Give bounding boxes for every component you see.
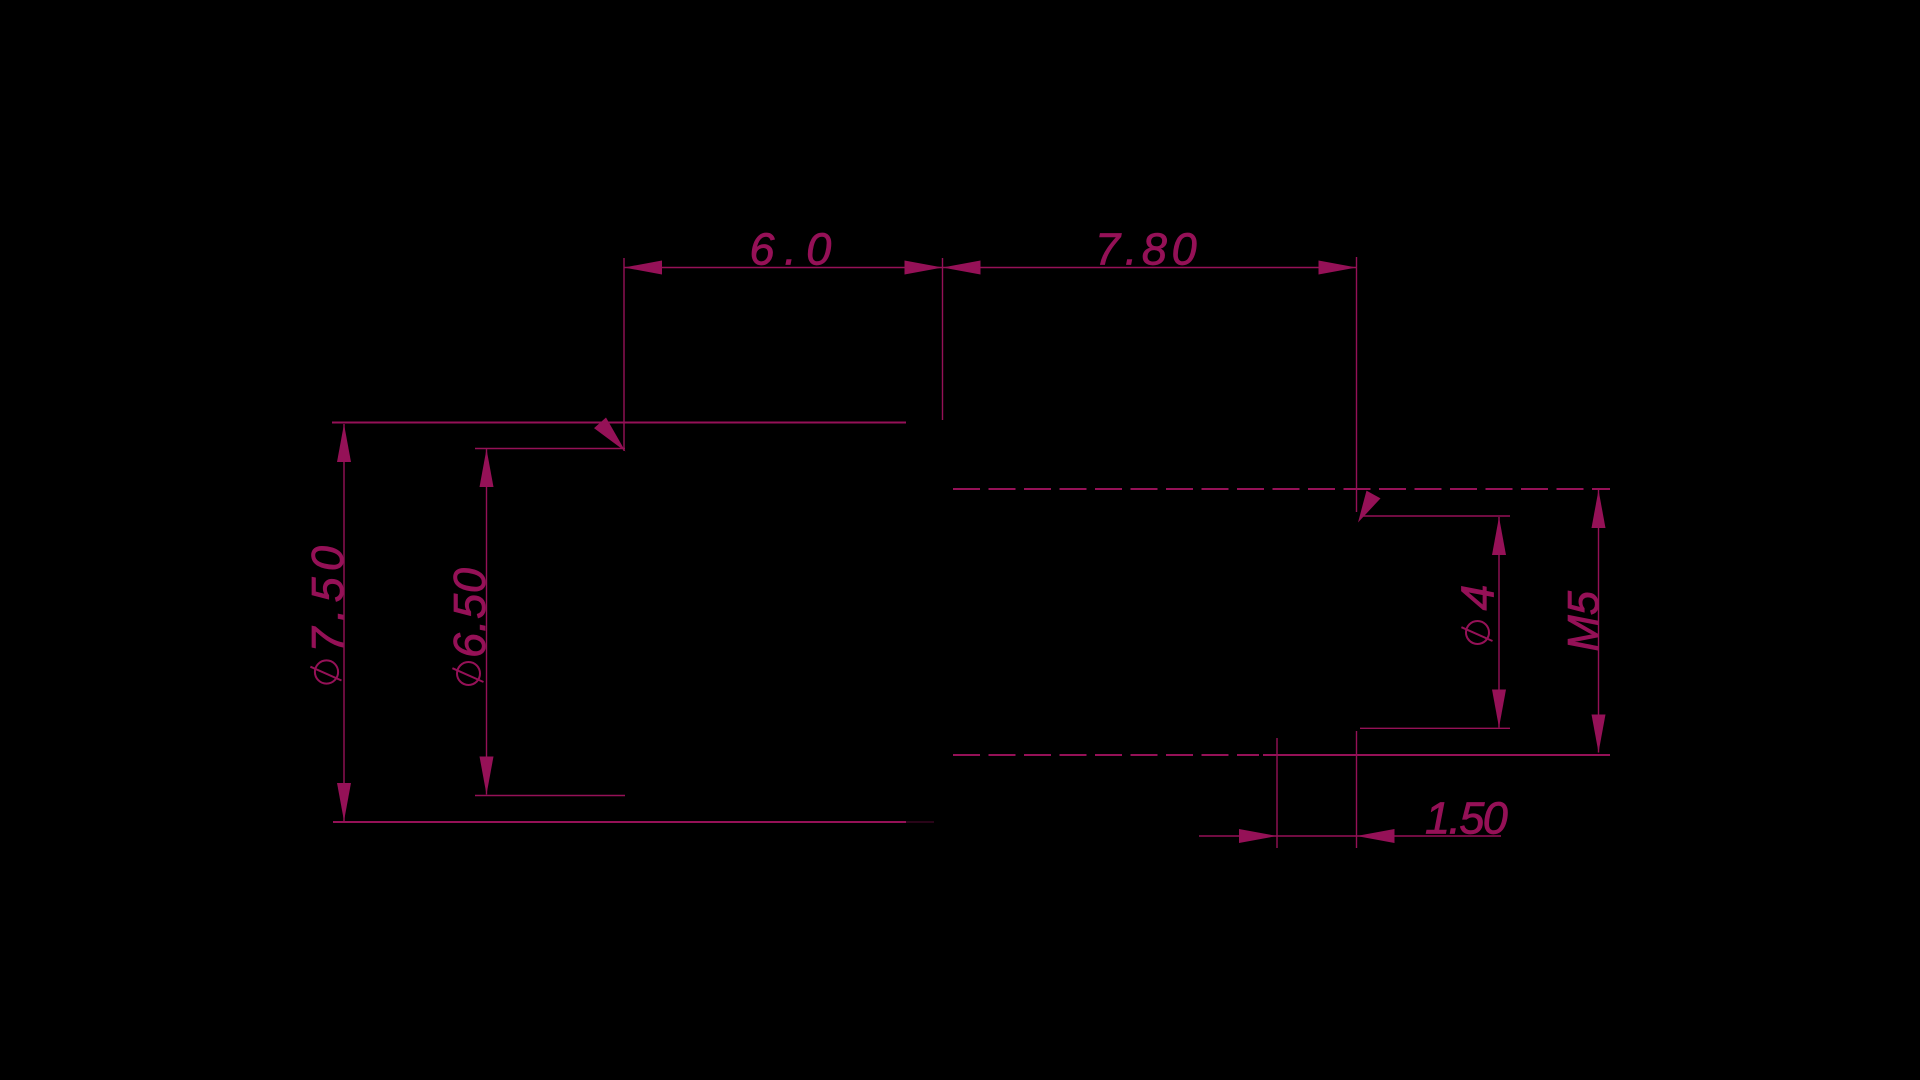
- svg-text:7.50: 7.50: [302, 540, 353, 653]
- svg-text:M5: M5: [1560, 590, 1608, 651]
- svg-text:7.80: 7.80: [1095, 224, 1201, 275]
- svg-text:4: 4: [1452, 585, 1504, 611]
- svg-text:6.0: 6.0: [750, 224, 841, 275]
- svg-text:1.50: 1.50: [1425, 793, 1508, 844]
- svg-text:6.50: 6.50: [444, 567, 495, 658]
